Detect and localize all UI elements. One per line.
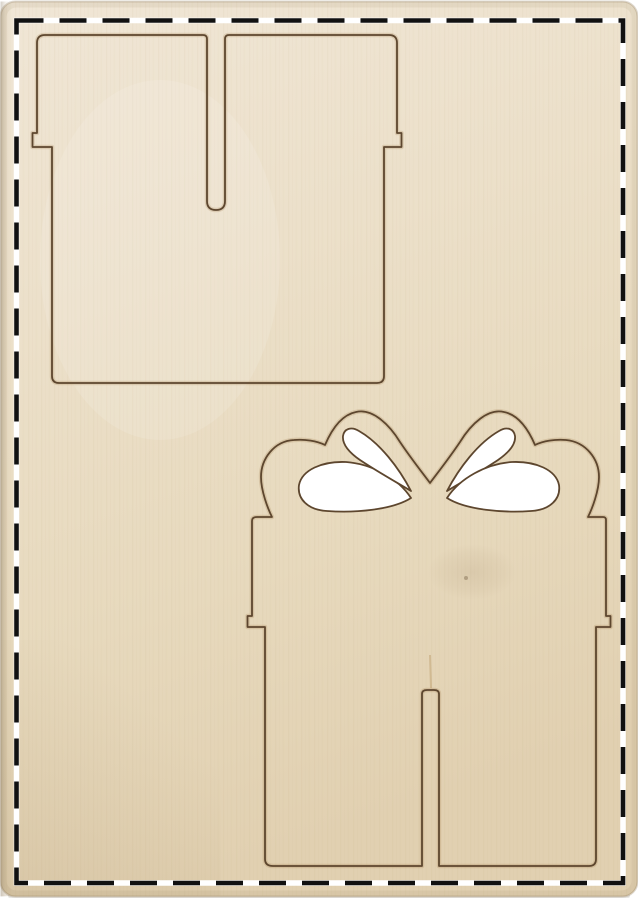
burn-streak <box>430 655 431 688</box>
plywood-sheet-photo <box>0 0 638 900</box>
plywood-sheet <box>1 2 638 897</box>
wood-knot <box>428 544 516 600</box>
photo-canvas <box>0 0 638 900</box>
wood-speck <box>464 576 468 580</box>
